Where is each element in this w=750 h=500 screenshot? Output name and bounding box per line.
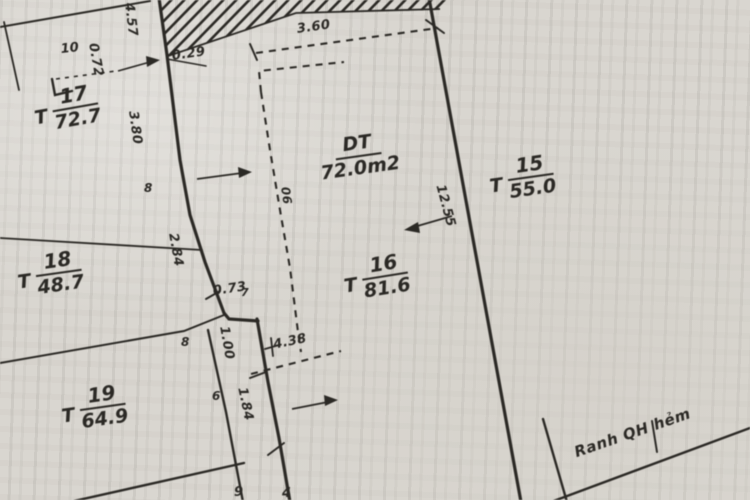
point-label-6: 6: [212, 389, 220, 403]
arrow-plot16-lower: [292, 395, 338, 409]
plot-18-prefix: T: [15, 262, 32, 293]
plot19-bottom-line: [74, 463, 244, 500]
plot-16-fraction: 16 81.6: [359, 250, 412, 302]
dashed-offset-line: [56, 71, 116, 79]
point-label-8-lower: 8: [181, 335, 189, 349]
right-boundary-line: [429, 0, 521, 500]
point-label-4: 4: [282, 486, 291, 500]
plot-15-prefix: T: [487, 166, 504, 197]
ranh-cross-line: [543, 419, 567, 500]
arrow-plot16-left-upper: [197, 167, 252, 179]
boundary-step-line: [224, 313, 258, 321]
map-scene: T 17 72.7 T 18 48.7 T 19 64.9 T 16 8: [0, 0, 750, 500]
point-label-9: 9: [234, 485, 243, 500]
dashed-dim-360-line: [256, 28, 438, 53]
point-label-10: 10: [60, 40, 80, 57]
plot-label-16: T 16 81.6: [340, 250, 412, 305]
plot-label-18: T 18 48.7: [14, 247, 85, 301]
arrow-offset-right: [118, 56, 160, 71]
point-label-7: 7: [241, 286, 249, 299]
plot-19-prefix: T: [59, 396, 76, 427]
plot-15-fraction: 15 55.0: [505, 151, 558, 202]
plot-17-fraction: 17 72.7: [49, 81, 103, 133]
plot-19-fraction: 19 64.9: [77, 381, 130, 432]
plot10-left-line: [4, 22, 19, 90]
plot-18-fraction: 18 48.7: [33, 247, 86, 298]
plot18-19-divider: [0, 315, 224, 363]
point-label-8-upper: 8: [144, 181, 152, 195]
ranh-qh-hem-line: [551, 428, 750, 500]
plot-label-15: T 15 55.0: [486, 151, 557, 205]
dim-06: 06: [278, 186, 294, 205]
plot-label-19: T 19 64.9: [58, 381, 129, 435]
dashed-plot-top-edge: [259, 62, 344, 92]
dashed-plot-left-edge: [261, 92, 301, 352]
cadastral-map: T 17 72.7 T 18 48.7 T 19 64.9 T 16 8: [0, 0, 750, 500]
